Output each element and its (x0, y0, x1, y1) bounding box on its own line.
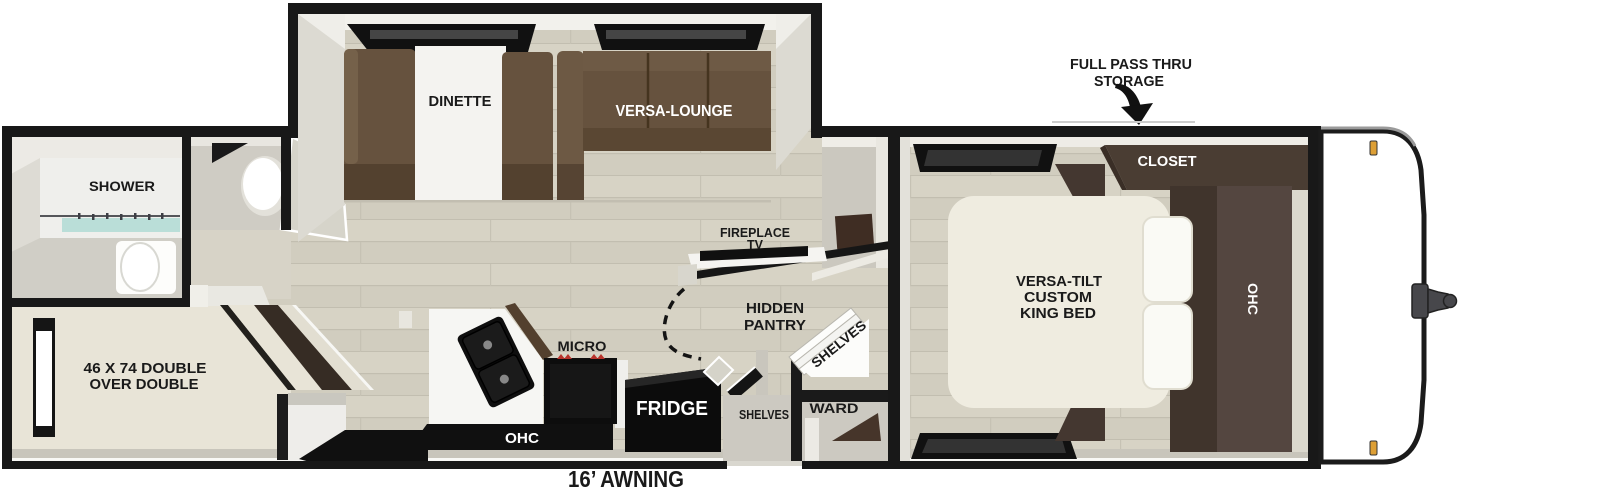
svg-text:HIDDEN: HIDDEN (746, 300, 804, 317)
svg-text:CUSTOM: CUSTOM (1024, 290, 1092, 306)
svg-text:SHOWER: SHOWER (89, 178, 155, 194)
svg-text:MICRO: MICRO (558, 339, 607, 354)
svg-text:16’ AWNING: 16’ AWNING (568, 466, 684, 488)
svg-text:DINETTE: DINETTE (429, 94, 492, 110)
svg-text:TV: TV (747, 238, 764, 252)
svg-text:WARD: WARD (810, 400, 859, 416)
svg-text:CLOSET: CLOSET (1138, 154, 1197, 170)
svg-text:PANTRY: PANTRY (744, 317, 806, 334)
svg-text:OHC: OHC (505, 430, 539, 447)
svg-text:VERSA-TILT: VERSA-TILT (1016, 274, 1102, 290)
svg-text:OHC: OHC (1245, 283, 1261, 315)
svg-text:FULL PASS THRU: FULL PASS THRU (1070, 56, 1192, 73)
svg-text:VERSA-LOUNGE: VERSA-LOUNGE (616, 103, 733, 120)
svg-text:OVER DOUBLE: OVER DOUBLE (90, 376, 199, 393)
svg-text:KING BED: KING BED (1020, 306, 1096, 322)
svg-text:SHELVES: SHELVES (739, 408, 789, 422)
svg-text:FRIDGE: FRIDGE (636, 398, 708, 420)
svg-text:STORAGE: STORAGE (1094, 73, 1164, 90)
svg-text:46 X 74 DOUBLE: 46 X 74 DOUBLE (84, 360, 207, 377)
